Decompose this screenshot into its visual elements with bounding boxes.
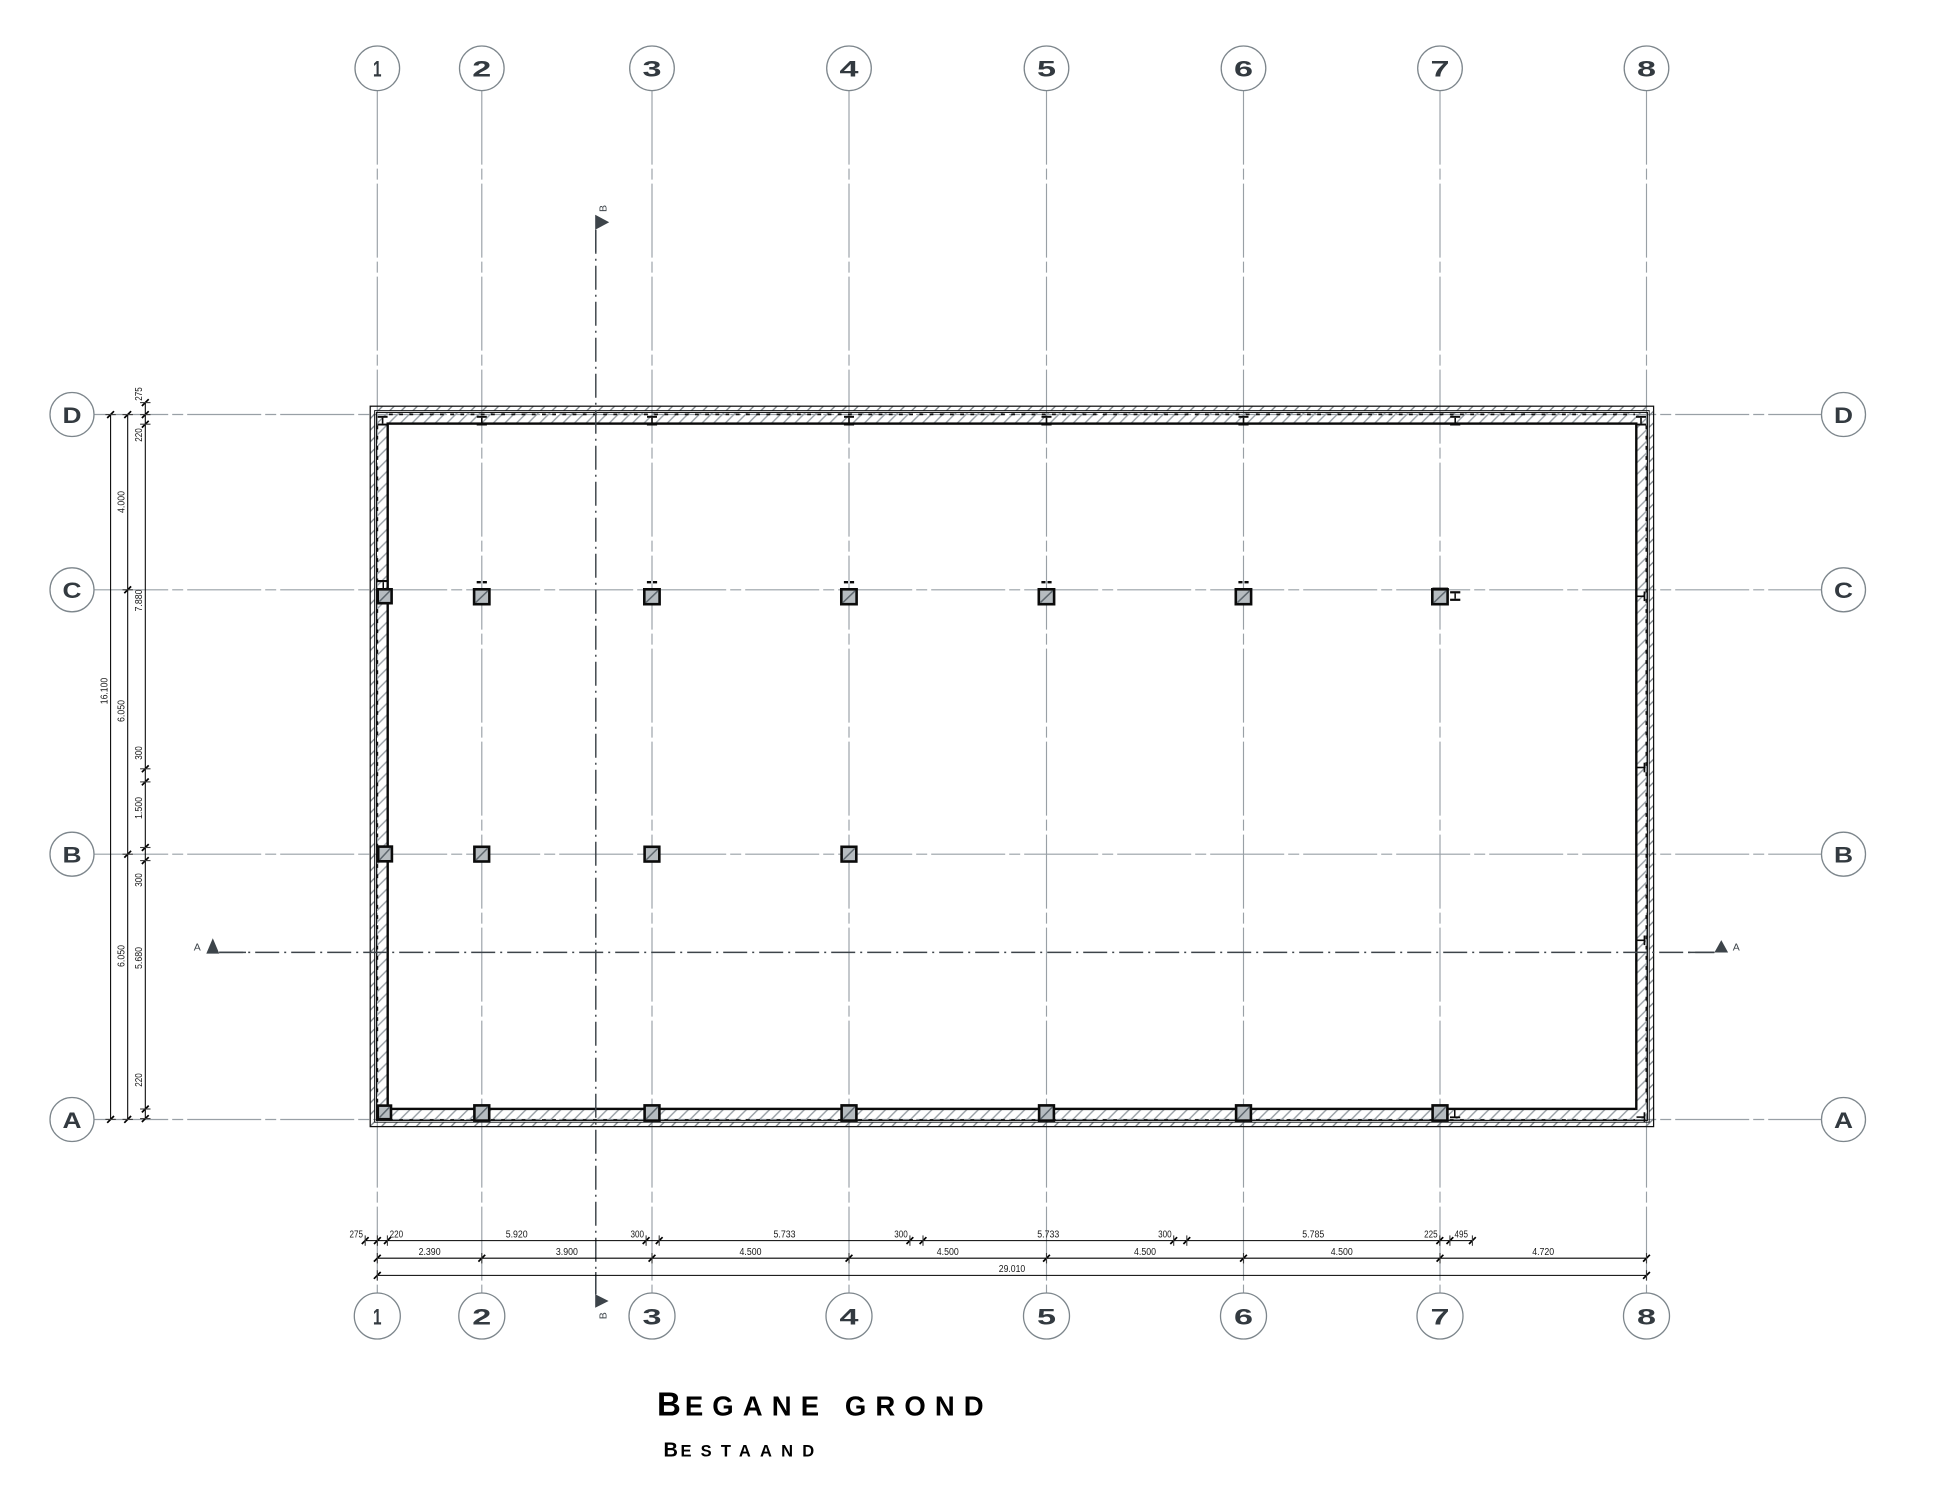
svg-text:16.100: 16.100	[99, 677, 110, 704]
svg-text:300: 300	[134, 873, 145, 887]
svg-text:300: 300	[631, 1229, 645, 1240]
svg-text:4.000: 4.000	[117, 491, 128, 513]
svg-text:5.733: 5.733	[774, 1229, 796, 1240]
svg-text:5.733: 5.733	[1037, 1229, 1059, 1240]
svg-text:6.050: 6.050	[117, 700, 128, 722]
svg-text:3: 3	[643, 57, 662, 82]
svg-text:5.680: 5.680	[134, 947, 145, 969]
svg-text:B: B	[1834, 843, 1853, 868]
svg-text:B: B	[598, 205, 610, 212]
svg-text:5: 5	[1037, 57, 1056, 82]
svg-text:7.880: 7.880	[134, 589, 145, 611]
svg-text:D: D	[1834, 403, 1853, 428]
svg-text:4.500: 4.500	[1134, 1247, 1156, 1258]
svg-text:2: 2	[472, 1304, 491, 1329]
svg-text:6.050: 6.050	[117, 945, 128, 967]
svg-text:5.785: 5.785	[1302, 1229, 1324, 1240]
svg-text:3.900: 3.900	[556, 1247, 578, 1258]
svg-text:5: 5	[1037, 1304, 1056, 1329]
svg-text:220: 220	[134, 428, 145, 442]
svg-text:4.500: 4.500	[1331, 1247, 1353, 1258]
svg-text:220: 220	[390, 1229, 404, 1240]
svg-text:495: 495	[1454, 1229, 1468, 1240]
svg-text:6: 6	[1234, 57, 1253, 82]
svg-text:C: C	[63, 578, 82, 603]
svg-text:300: 300	[134, 746, 145, 760]
svg-text:6: 6	[1234, 1304, 1253, 1329]
svg-text:4: 4	[840, 1304, 860, 1329]
svg-text:2: 2	[472, 57, 491, 82]
svg-text:300: 300	[1158, 1229, 1172, 1240]
svg-text:5.920: 5.920	[506, 1229, 528, 1240]
svg-text:275: 275	[134, 387, 145, 401]
svg-text:BEGANE GROND: BEGANE GROND	[657, 1386, 993, 1423]
svg-text:1: 1	[373, 57, 382, 82]
svg-text:BESTAAND: BESTAAND	[664, 1440, 824, 1462]
svg-text:1: 1	[373, 1304, 382, 1329]
svg-text:2.390: 2.390	[419, 1247, 441, 1258]
svg-text:29.010: 29.010	[999, 1264, 1026, 1275]
svg-text:8: 8	[1637, 57, 1656, 82]
svg-text:B: B	[63, 843, 82, 868]
svg-text:220: 220	[134, 1073, 145, 1087]
svg-text:300: 300	[894, 1229, 908, 1240]
svg-text:1.500: 1.500	[134, 797, 145, 819]
svg-text:A: A	[1834, 1108, 1853, 1133]
svg-text:B: B	[597, 1312, 609, 1319]
svg-text:8: 8	[1637, 1304, 1656, 1329]
svg-text:4.500: 4.500	[740, 1247, 762, 1258]
svg-text:D: D	[63, 403, 82, 428]
svg-text:A: A	[63, 1108, 82, 1133]
svg-text:A: A	[194, 942, 201, 954]
svg-text:7: 7	[1431, 57, 1450, 82]
svg-text:4.720: 4.720	[1532, 1247, 1554, 1258]
svg-text:4: 4	[840, 57, 860, 82]
svg-text:3: 3	[643, 1304, 662, 1329]
svg-text:225: 225	[1424, 1229, 1438, 1240]
svg-text:4.500: 4.500	[937, 1247, 959, 1258]
svg-text:7: 7	[1431, 1304, 1450, 1329]
svg-text:A: A	[1733, 942, 1740, 954]
svg-text:C: C	[1834, 578, 1853, 603]
svg-text:275: 275	[350, 1229, 364, 1240]
